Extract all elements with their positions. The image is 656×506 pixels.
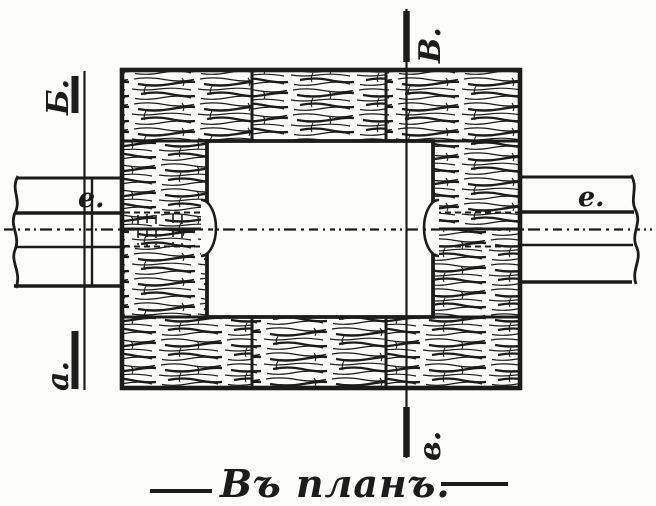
masonry-block — [122, 70, 252, 141]
masonry-block — [433, 229, 520, 317]
pipe-label-left: е. — [78, 183, 105, 214]
masonry-block — [122, 141, 207, 229]
plan-drawing: Б. а. В. в. е. е. Въ планъ. — [0, 0, 656, 506]
section-label-top-left: Б. — [41, 79, 76, 116]
pipe-label-right: е. — [578, 182, 605, 213]
section-label-bottom-left: а. — [41, 361, 76, 391]
section-label-bottom-right: в. — [413, 431, 448, 461]
caption-text: Въ планъ. — [219, 461, 451, 506]
masonry-block — [252, 317, 386, 388]
masonry-block — [122, 317, 252, 388]
masonry-block — [433, 141, 520, 229]
section-label-top-right: В. — [413, 27, 448, 64]
masonry-block — [252, 70, 386, 141]
engraving-page: Б. а. В. в. е. е. Въ планъ. — [0, 0, 656, 506]
masonry-block — [122, 229, 207, 317]
